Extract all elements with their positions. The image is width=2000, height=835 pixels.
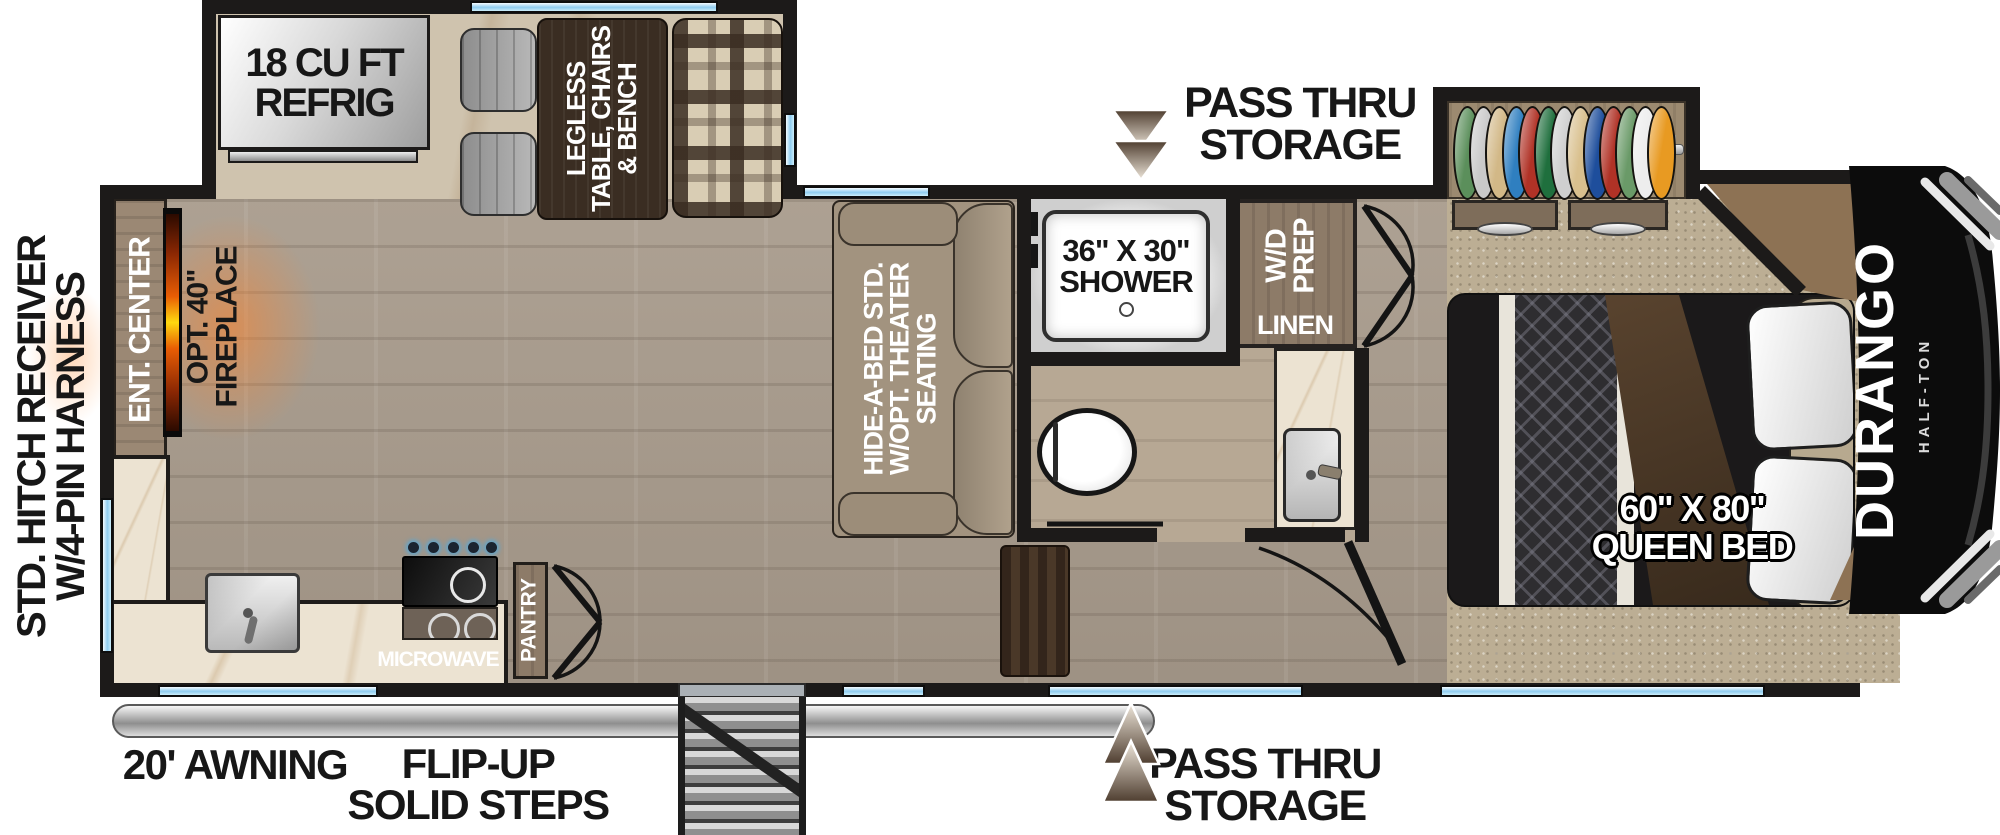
window-hall-bottom	[1048, 685, 1303, 697]
steps-label: FLIP-UP SOLID STEPS	[328, 743, 628, 825]
cap-highlight	[1925, 180, 2000, 600]
wall-hook	[1031, 212, 1038, 236]
refrigerator-base	[228, 150, 418, 163]
wall-vanity-right	[1355, 348, 1369, 542]
shower-pan: 36" X 30" SHOWER	[1042, 210, 1210, 342]
wall-closet-top	[1433, 87, 1700, 101]
linen-label: LINEN	[1233, 312, 1357, 338]
nightstand-lamp	[1477, 222, 1533, 236]
wall-top-right	[1700, 170, 1865, 184]
refrig-label: 18 CU FT	[245, 43, 402, 83]
bed-label: 60" X 80" QUEEN BED	[1582, 490, 1802, 566]
entry-steps	[678, 697, 806, 835]
closet-clothes	[1449, 103, 1684, 197]
pass-thru-bottom-label: PASS THRU STORAGE	[1115, 743, 1415, 827]
awning-label: 20' AWNING	[110, 744, 360, 785]
wall-slideout-left	[202, 0, 216, 199]
window-dinette-top	[470, 1, 718, 13]
sofa-backrest	[953, 203, 1013, 368]
brand-logo-sub: HALF-TON	[1916, 337, 1933, 453]
fireplace-flame	[166, 214, 179, 431]
shower-label: 36" X 30"	[1062, 235, 1189, 266]
sofa-armrest	[838, 492, 958, 536]
entry-mat	[1000, 545, 1070, 677]
window-left-wall	[101, 498, 113, 653]
window-bedroom-bottom	[1440, 685, 1765, 697]
dinette-chair	[460, 28, 537, 112]
queen-bed: 60" X 80" QUEEN BED	[1447, 293, 1855, 607]
sofa-backrest	[953, 370, 1013, 535]
range-front	[402, 607, 498, 640]
pantry-label: PANTRY	[520, 578, 541, 662]
cooktop	[402, 556, 498, 607]
shower-label2: SHOWER	[1059, 266, 1193, 297]
ent-center-label: ENT. CENTER	[125, 237, 154, 423]
dinette-table-label: LEGLESS TABLE, CHAIRS & BENCH	[564, 26, 640, 212]
wall-hook	[1031, 244, 1038, 268]
awning-tube	[112, 704, 1155, 738]
sofa-label: HIDE-A-BED STD. W/OPT. THEATER SEATING	[860, 263, 939, 476]
pass-thru-top-label: PASS THRU STORAGE	[1150, 82, 1450, 166]
entry-threshold	[678, 683, 806, 698]
hitch-label: STD. HITCH RECEIVER W/4-PIN HARNESS	[13, 236, 91, 638]
bed-pillow	[1745, 300, 1855, 451]
wall-slideout-right	[783, 0, 797, 199]
wall-shower-right	[1226, 199, 1240, 366]
refrigerator: 18 CU FT REFRIG	[218, 15, 430, 150]
toilet	[1037, 408, 1137, 496]
floor-plan: 18 CU FT REFRIG LEGLESS TABLE, CHAIRS & …	[0, 0, 2000, 835]
nightstand-lamp	[1590, 222, 1646, 236]
vanity-faucet	[1306, 470, 1316, 480]
wall-bath-bottom	[1017, 528, 1157, 542]
window-kitchen	[158, 685, 378, 697]
shower-drain	[1119, 302, 1134, 317]
wall-below-shower	[1017, 352, 1240, 366]
wall-bedroom-door-stub	[1245, 528, 1345, 542]
sofa-armrest	[838, 202, 958, 246]
microwave-label: MICROWAVE	[372, 650, 504, 671]
wd-prep-label: W/D PREP	[1263, 219, 1320, 294]
cooktop-knobs	[404, 542, 498, 556]
wardrobe-closet	[1447, 101, 1686, 199]
wall-top-left	[100, 185, 216, 199]
closet-clothing-item	[1647, 106, 1676, 200]
fireplace-label: OPT. 40" FIREPLACE	[184, 246, 243, 407]
refrig-label2: REFRIG	[254, 83, 393, 123]
wall-bath-left	[1017, 199, 1031, 542]
dinette-chair	[460, 132, 537, 216]
window-slideout-side	[784, 113, 796, 167]
steps-rail	[678, 701, 806, 802]
window-sofa	[803, 186, 930, 198]
window-living-bottom	[842, 685, 925, 697]
dinette-bench	[672, 18, 783, 218]
wall-closet-right	[1686, 87, 1700, 199]
bed-sheet-strip	[1499, 295, 1515, 605]
